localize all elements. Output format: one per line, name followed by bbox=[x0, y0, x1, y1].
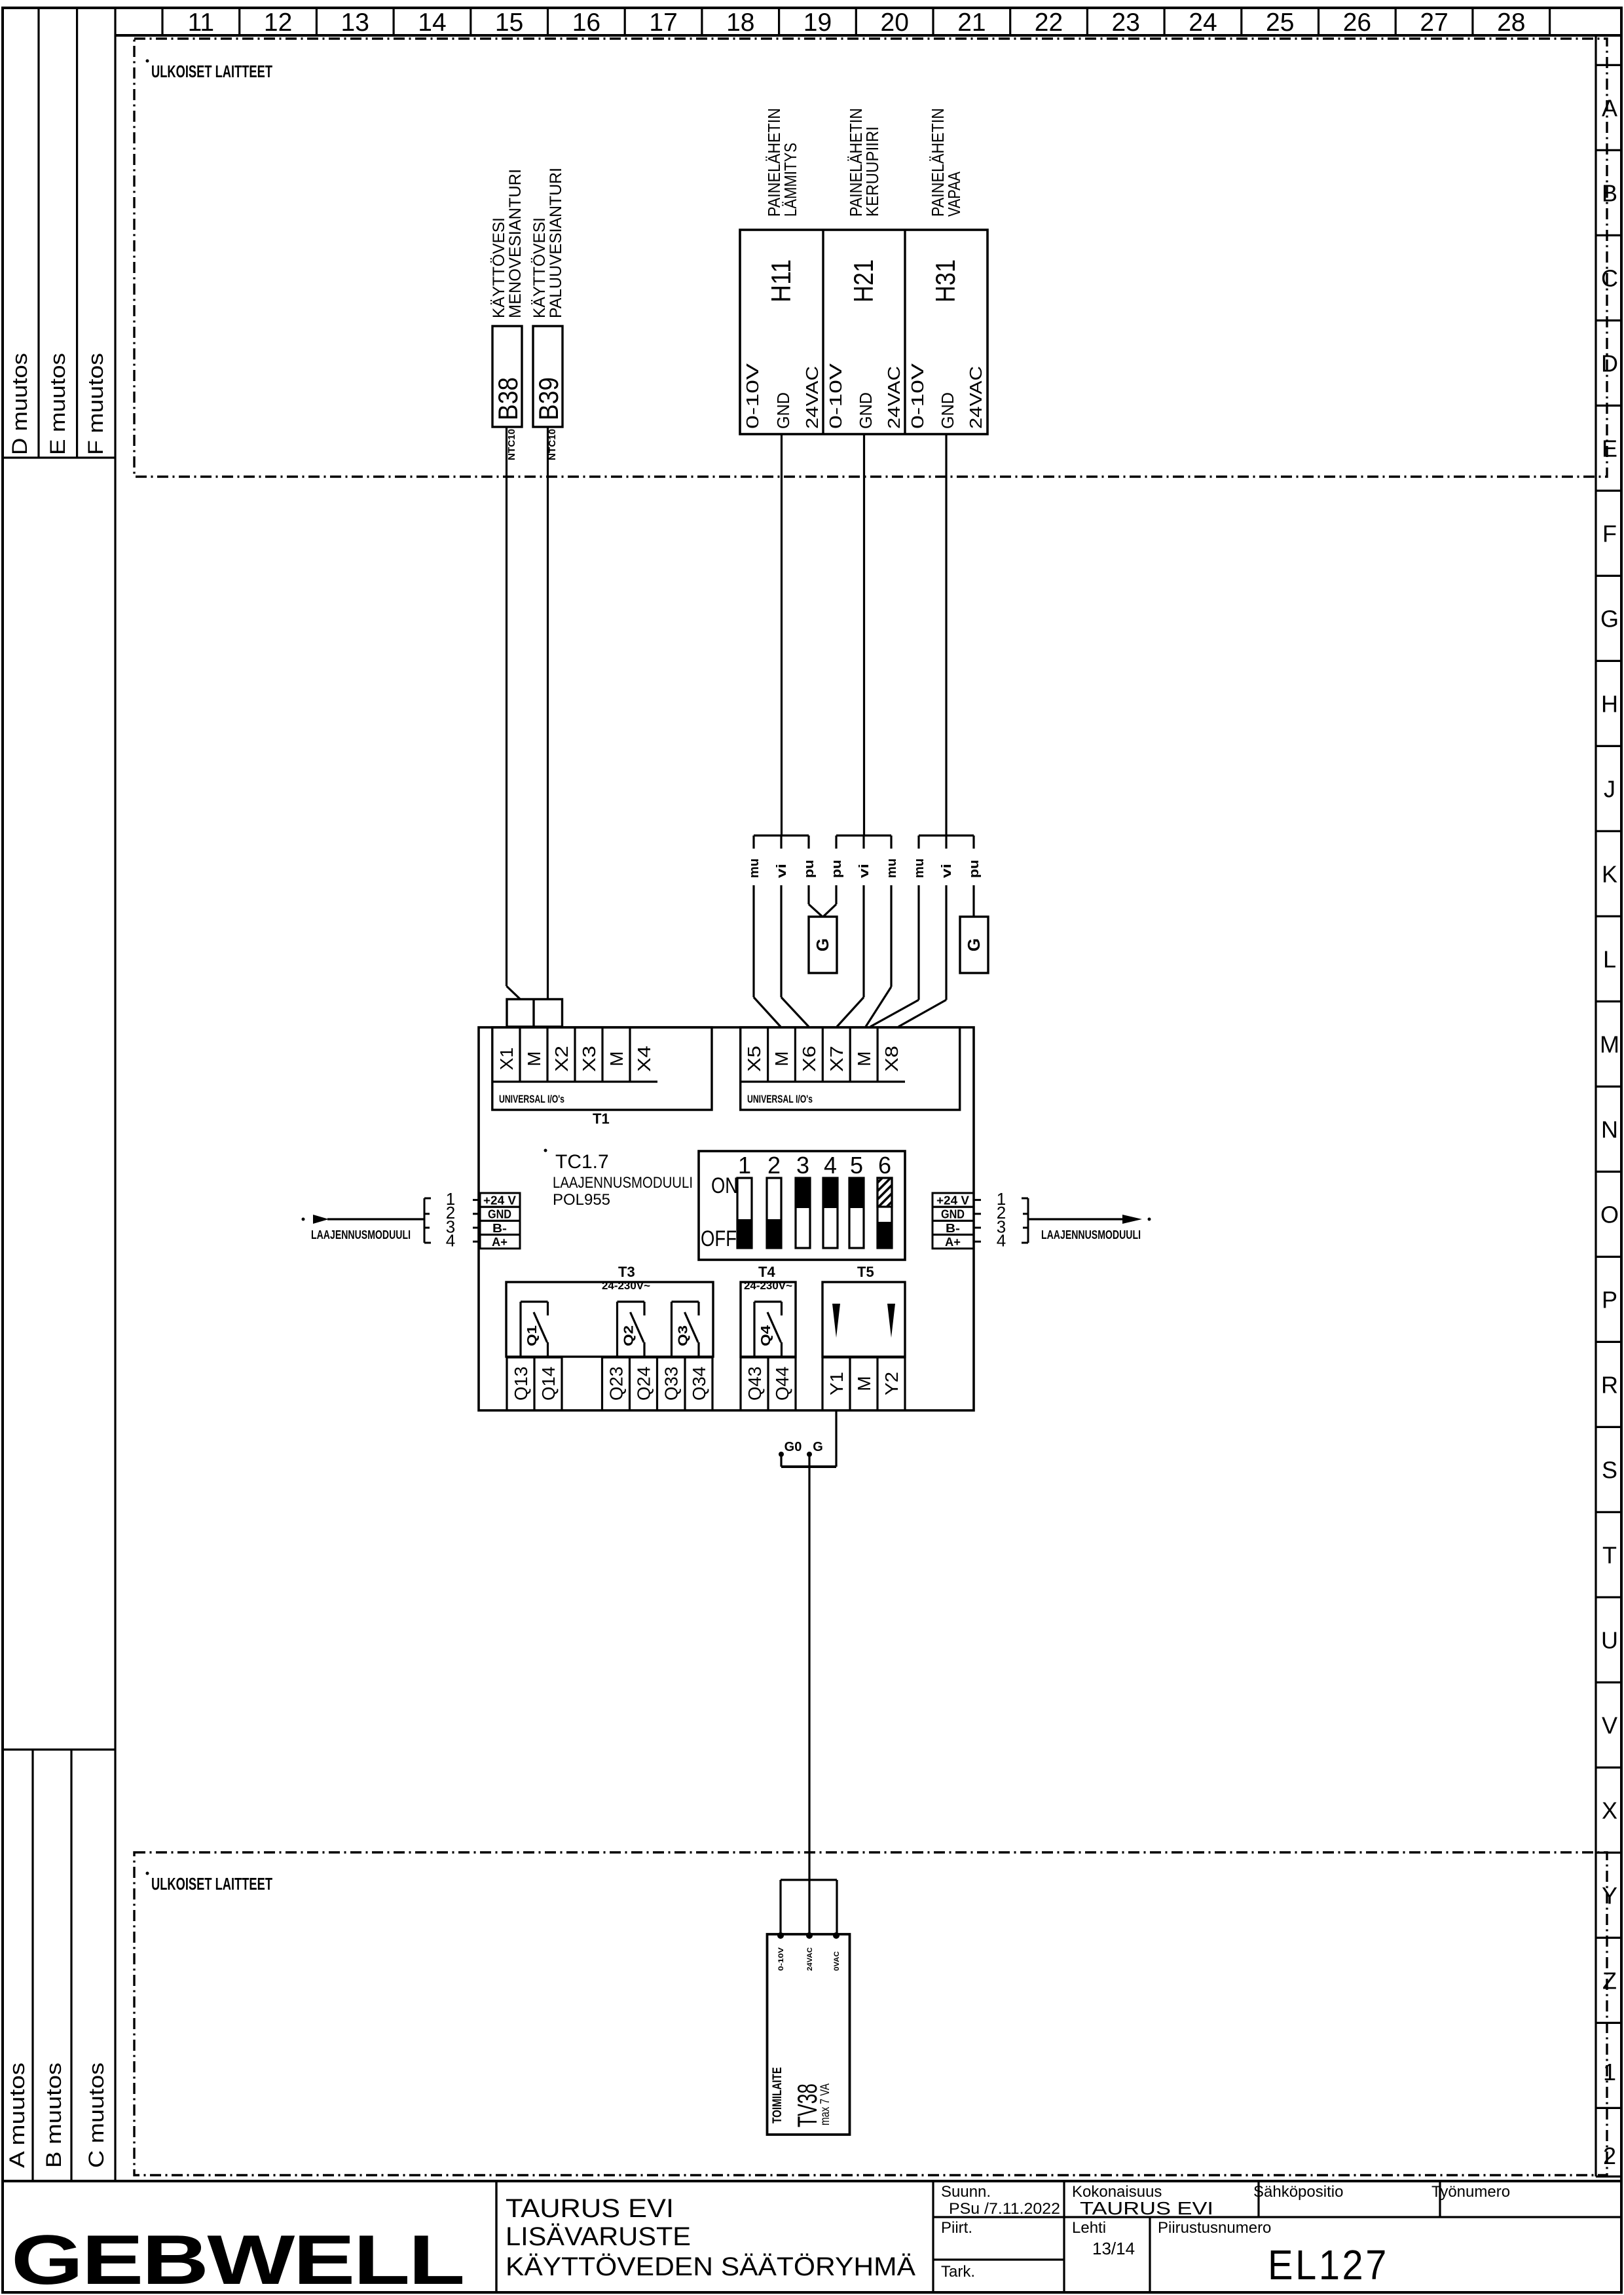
svg-text:19: 19 bbox=[803, 9, 832, 37]
svg-text:max 7 VA: max 7 VA bbox=[819, 2084, 832, 2125]
svg-text:K: K bbox=[1602, 860, 1617, 887]
svg-text:24-230V~: 24-230V~ bbox=[602, 1279, 650, 1292]
svg-text:Työnumero: Työnumero bbox=[1431, 2183, 1510, 2201]
svg-text:Q14: Q14 bbox=[538, 1367, 559, 1401]
svg-text:Q4: Q4 bbox=[759, 1325, 773, 1346]
svg-text:B39: B39 bbox=[533, 377, 564, 420]
svg-text:ON: ON bbox=[711, 1173, 738, 1198]
svg-text:+24 V: +24 V bbox=[936, 1194, 969, 1207]
svg-text:TAURUS EVI: TAURUS EVI bbox=[506, 2194, 674, 2223]
svg-text:KÄYTTÖVESI: KÄYTTÖVESI bbox=[490, 217, 508, 318]
svg-text:D: D bbox=[1601, 350, 1618, 376]
svg-text:4: 4 bbox=[824, 1152, 837, 1179]
svg-text:ULKOISET LAITTEET: ULKOISET LAITTEET bbox=[151, 62, 272, 81]
svg-text:U: U bbox=[1601, 1626, 1618, 1653]
svg-text:23: 23 bbox=[1112, 9, 1140, 37]
svg-text:GND: GND bbox=[773, 392, 793, 429]
svg-text:0-10V: 0-10V bbox=[826, 363, 845, 429]
svg-text:E: E bbox=[1602, 435, 1617, 462]
svg-text:17: 17 bbox=[649, 9, 677, 37]
svg-text:S: S bbox=[1602, 1456, 1617, 1483]
svg-text:L: L bbox=[1603, 946, 1616, 972]
svg-text:X8: X8 bbox=[881, 1046, 902, 1072]
svg-text:PALUUVESIANTURI: PALUUVESIANTURI bbox=[547, 168, 565, 318]
svg-text:UNIVERSAL I/O's: UNIVERSAL I/O's bbox=[499, 1093, 564, 1105]
svg-text:GND: GND bbox=[488, 1208, 511, 1221]
svg-text:22: 22 bbox=[1035, 9, 1063, 37]
svg-text:pu: pu bbox=[830, 860, 844, 878]
svg-text:11: 11 bbox=[188, 9, 215, 37]
svg-text:26: 26 bbox=[1343, 9, 1371, 37]
svg-text:14: 14 bbox=[418, 9, 446, 37]
svg-text:Q3: Q3 bbox=[676, 1325, 691, 1346]
svg-text:13: 13 bbox=[341, 9, 369, 37]
svg-text:Q24: Q24 bbox=[634, 1367, 654, 1401]
svg-text:X3: X3 bbox=[579, 1046, 599, 1072]
svg-text:T5: T5 bbox=[857, 1264, 874, 1280]
svg-text:X5: X5 bbox=[744, 1046, 764, 1072]
svg-text:B: B bbox=[1602, 179, 1617, 206]
svg-text:Piirustusnumero: Piirustusnumero bbox=[1158, 2219, 1271, 2237]
svg-text:X7: X7 bbox=[826, 1046, 847, 1072]
svg-text:20: 20 bbox=[881, 9, 909, 37]
svg-text:PSu /7.11.2022: PSu /7.11.2022 bbox=[949, 2200, 1060, 2218]
svg-text:B-: B- bbox=[492, 1222, 507, 1235]
svg-text:LÄMMITYS: LÄMMITYS bbox=[781, 143, 800, 217]
svg-text:F: F bbox=[1602, 520, 1617, 547]
svg-text:Q34: Q34 bbox=[689, 1367, 709, 1401]
svg-text:R: R bbox=[1601, 1371, 1618, 1398]
svg-text:Z: Z bbox=[1602, 1967, 1617, 1994]
svg-text:X: X bbox=[1602, 1797, 1617, 1824]
svg-text:X6: X6 bbox=[799, 1046, 819, 1072]
svg-text:B38: B38 bbox=[492, 377, 523, 420]
svg-text:Q23: Q23 bbox=[606, 1367, 627, 1401]
svg-text:N: N bbox=[1601, 1116, 1618, 1143]
svg-text:B muutos: B muutos bbox=[42, 2063, 65, 2168]
svg-text:Q33: Q33 bbox=[661, 1367, 682, 1401]
svg-text:13/14: 13/14 bbox=[1092, 2239, 1135, 2258]
svg-text:LAAJENNUSMODUULI: LAAJENNUSMODUULI bbox=[311, 1228, 411, 1241]
svg-text:A+: A+ bbox=[945, 1236, 961, 1249]
svg-text:G: G bbox=[813, 938, 832, 951]
svg-text:P: P bbox=[1602, 1286, 1617, 1313]
svg-text:24VAC: 24VAC bbox=[884, 366, 904, 429]
svg-text:UNIVERSAL I/O's: UNIVERSAL I/O's bbox=[747, 1093, 813, 1105]
svg-text:27: 27 bbox=[1420, 9, 1448, 37]
svg-text:pu: pu bbox=[967, 860, 982, 878]
svg-text:+24 V: +24 V bbox=[483, 1194, 516, 1207]
svg-text:LAAJENNUSMODUULI: LAAJENNUSMODUULI bbox=[1041, 1228, 1141, 1241]
svg-text:H: H bbox=[1601, 690, 1618, 717]
svg-text:5: 5 bbox=[850, 1152, 863, 1179]
svg-text:OFF: OFF bbox=[701, 1226, 737, 1251]
svg-text:KERUUPIIRI: KERUUPIIRI bbox=[862, 126, 882, 217]
svg-text:Sähköpositio: Sähköpositio bbox=[1253, 2183, 1343, 2201]
svg-text:25: 25 bbox=[1266, 9, 1294, 37]
svg-text:GEBWELL: GEBWELL bbox=[11, 2220, 464, 2295]
svg-text:28: 28 bbox=[1497, 9, 1525, 37]
svg-text:vi: vi bbox=[775, 864, 789, 878]
svg-text:2: 2 bbox=[767, 1152, 781, 1179]
svg-text:vi: vi bbox=[857, 864, 872, 878]
svg-text:C muutos: C muutos bbox=[84, 2063, 108, 2168]
svg-text:16: 16 bbox=[572, 9, 600, 37]
svg-text:V: V bbox=[1602, 1712, 1617, 1738]
svg-text:Y2: Y2 bbox=[881, 1372, 902, 1395]
svg-text:G: G bbox=[964, 938, 984, 951]
svg-text:Q1: Q1 bbox=[525, 1325, 540, 1346]
svg-text:G: G bbox=[813, 1440, 823, 1454]
svg-text:M: M bbox=[606, 1052, 627, 1067]
svg-text:0-10V: 0-10V bbox=[908, 363, 927, 429]
svg-text:12: 12 bbox=[264, 9, 292, 37]
svg-text:TAURUS EVI: TAURUS EVI bbox=[1080, 2198, 1213, 2218]
svg-text:1: 1 bbox=[738, 1152, 751, 1179]
svg-text:TC1.7: TC1.7 bbox=[555, 1151, 609, 1173]
svg-text:A+: A+ bbox=[492, 1236, 507, 1249]
svg-text:21: 21 bbox=[957, 9, 986, 37]
svg-text:pu: pu bbox=[802, 860, 817, 878]
svg-text:X2: X2 bbox=[551, 1046, 572, 1072]
svg-text:VAPAA: VAPAA bbox=[944, 171, 964, 217]
svg-text:24VAC: 24VAC bbox=[802, 366, 822, 429]
svg-text:Suunn.: Suunn. bbox=[941, 2183, 991, 2201]
svg-text:vi: vi bbox=[940, 864, 954, 878]
svg-text:MENOVESIANTURI: MENOVESIANTURI bbox=[506, 169, 525, 318]
svg-text:POL955: POL955 bbox=[553, 1191, 610, 1209]
svg-text:X1: X1 bbox=[496, 1048, 517, 1071]
svg-text:GND: GND bbox=[856, 392, 876, 429]
svg-text:LAAJENNUSMODUULI: LAAJENNUSMODUULI bbox=[553, 1174, 693, 1192]
svg-text:A: A bbox=[1602, 94, 1617, 121]
svg-text:2: 2 bbox=[1603, 2142, 1616, 2169]
svg-text:24VAC: 24VAC bbox=[966, 366, 986, 429]
svg-text:TOIMILAITE: TOIMILAITE bbox=[771, 2067, 784, 2123]
svg-text:Q2: Q2 bbox=[622, 1325, 637, 1346]
svg-text:0-10V: 0-10V bbox=[777, 1947, 785, 1971]
svg-text:T: T bbox=[1602, 1541, 1617, 1568]
svg-text:Tark.: Tark. bbox=[941, 2263, 975, 2281]
svg-text:NTC10: NTC10 bbox=[506, 429, 517, 460]
svg-text:mu: mu bbox=[885, 858, 899, 878]
svg-text:Q13: Q13 bbox=[511, 1367, 531, 1401]
svg-text:Y1: Y1 bbox=[826, 1372, 847, 1395]
svg-text:X4: X4 bbox=[634, 1046, 654, 1072]
svg-text:H31: H31 bbox=[930, 259, 961, 303]
svg-text:18: 18 bbox=[726, 9, 754, 37]
svg-text:3: 3 bbox=[796, 1152, 809, 1179]
svg-text:H21: H21 bbox=[848, 259, 879, 303]
svg-text:0VAC: 0VAC bbox=[833, 1951, 841, 1971]
svg-text:ULKOISET LAITTEET: ULKOISET LAITTEET bbox=[151, 1874, 272, 1894]
svg-text:Q44: Q44 bbox=[772, 1367, 792, 1401]
svg-text:GND: GND bbox=[938, 392, 957, 429]
svg-text:E muutos: E muutos bbox=[46, 353, 69, 455]
svg-text:6: 6 bbox=[878, 1152, 891, 1179]
svg-text:mu: mu bbox=[747, 858, 762, 878]
svg-text:Y: Y bbox=[1602, 1882, 1617, 1909]
svg-text:TV38: TV38 bbox=[792, 2084, 822, 2127]
svg-text:D muutos: D muutos bbox=[8, 353, 31, 455]
svg-text:M: M bbox=[771, 1052, 792, 1067]
svg-text:KÄYTTÖVESI: KÄYTTÖVESI bbox=[530, 217, 549, 318]
svg-text:G: G bbox=[1600, 605, 1619, 632]
svg-text:mu: mu bbox=[912, 858, 927, 878]
svg-text:24-230V~: 24-230V~ bbox=[744, 1279, 792, 1292]
svg-text:24: 24 bbox=[1189, 9, 1217, 37]
svg-text:0-10V: 0-10V bbox=[743, 363, 762, 429]
svg-text:M: M bbox=[524, 1052, 544, 1067]
svg-text:LISÄVARUSTE: LISÄVARUSTE bbox=[506, 2222, 691, 2251]
svg-text:B-: B- bbox=[946, 1222, 960, 1235]
svg-text:GND: GND bbox=[941, 1208, 965, 1221]
svg-text:Lehti: Lehti bbox=[1072, 2219, 1106, 2237]
svg-text:M: M bbox=[1600, 1031, 1619, 1057]
svg-text:H11: H11 bbox=[766, 259, 796, 303]
svg-text:M: M bbox=[854, 1052, 874, 1067]
svg-text:O: O bbox=[1600, 1201, 1619, 1228]
svg-text:Q43: Q43 bbox=[745, 1367, 765, 1401]
svg-text:T1: T1 bbox=[593, 1111, 610, 1127]
svg-text:15: 15 bbox=[495, 9, 523, 37]
svg-text:4: 4 bbox=[446, 1231, 455, 1251]
svg-text:T3: T3 bbox=[618, 1264, 635, 1280]
svg-text:T4: T4 bbox=[758, 1264, 775, 1280]
svg-text:J: J bbox=[1604, 775, 1615, 802]
svg-text:M: M bbox=[854, 1376, 874, 1391]
svg-text:KÄYTTÖVEDEN SÄÄTÖRYHMÄ: KÄYTTÖVEDEN SÄÄTÖRYHMÄ bbox=[506, 2252, 915, 2281]
svg-text:1: 1 bbox=[1603, 2059, 1616, 2085]
svg-text:F muutos: F muutos bbox=[84, 353, 107, 455]
svg-text:Piirt.: Piirt. bbox=[941, 2219, 972, 2237]
svg-text:A muutos: A muutos bbox=[5, 2063, 29, 2168]
svg-text:24VAC: 24VAC bbox=[806, 1947, 814, 1971]
svg-text:4: 4 bbox=[997, 1231, 1006, 1251]
svg-text:G0: G0 bbox=[784, 1440, 802, 1454]
svg-text:EL127: EL127 bbox=[1268, 2241, 1389, 2288]
svg-text:C: C bbox=[1601, 265, 1618, 291]
